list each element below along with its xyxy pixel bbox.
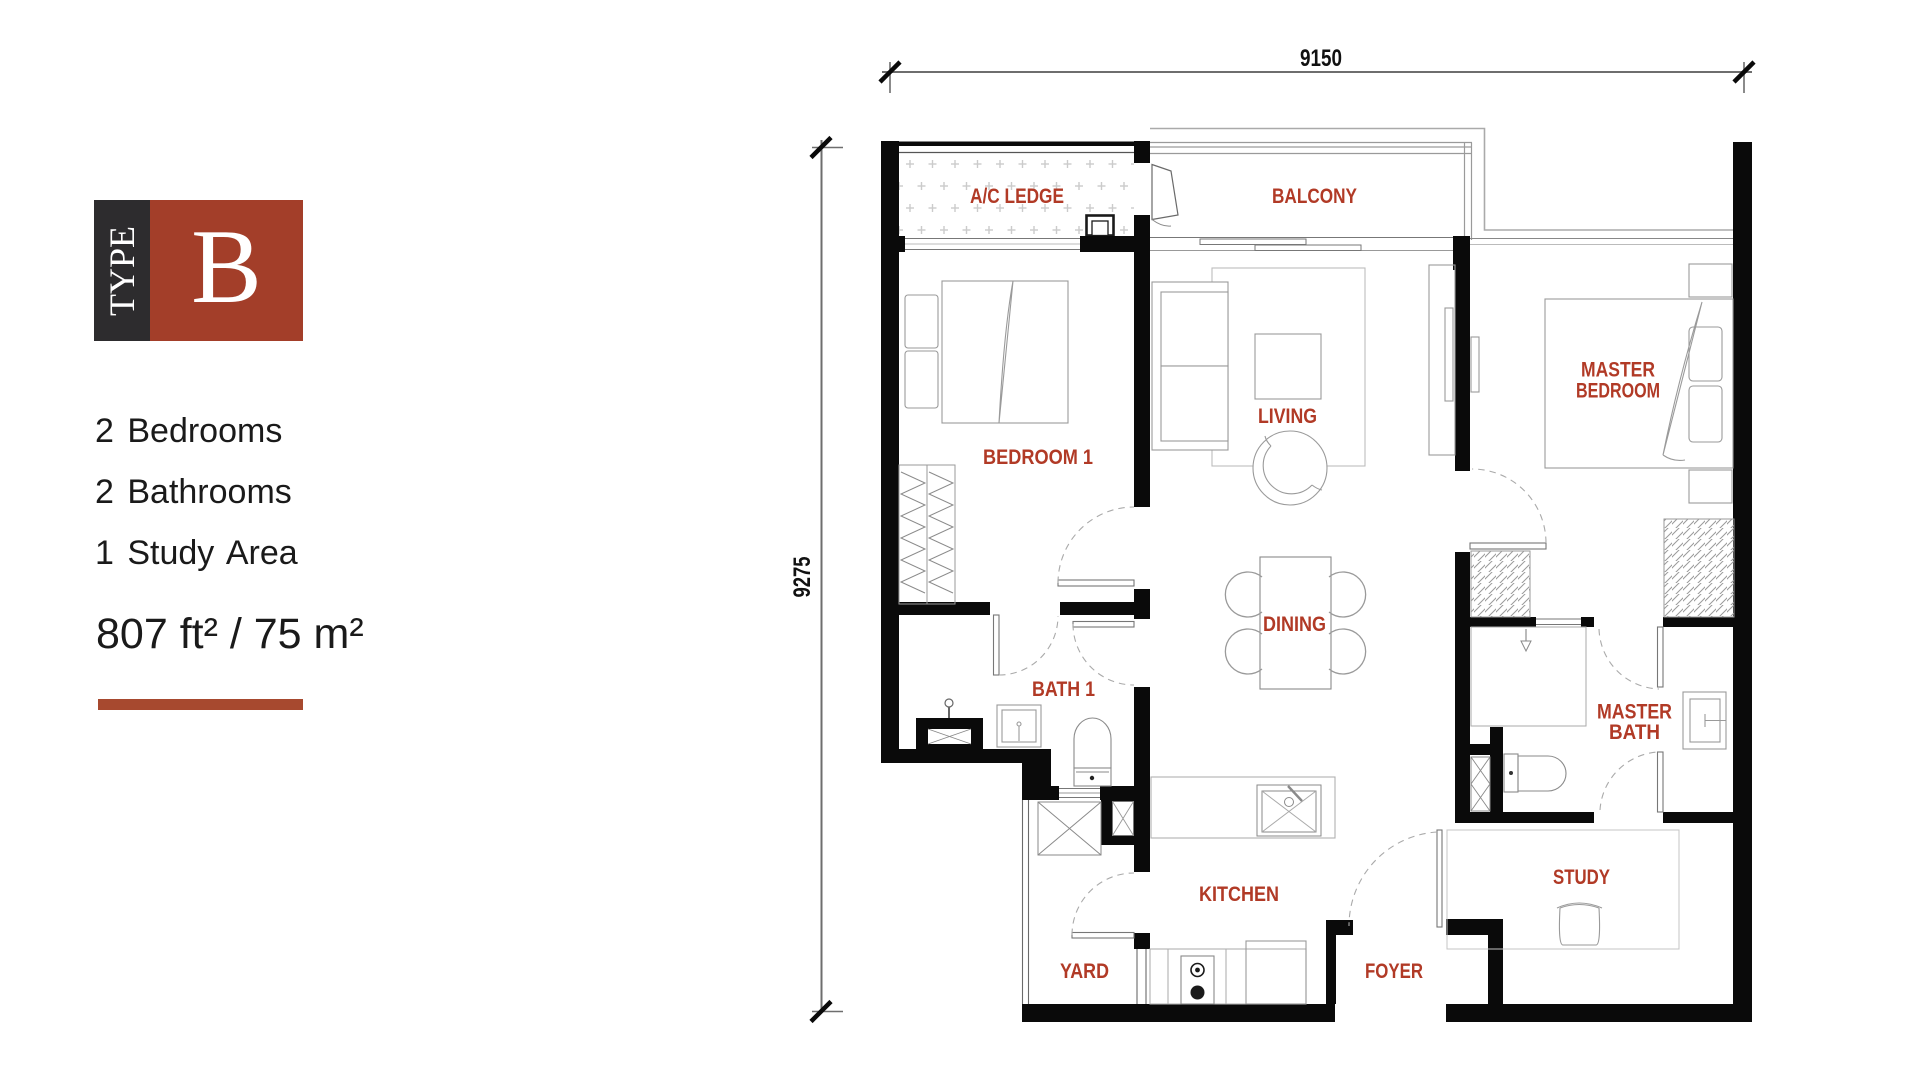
svg-text:BEDROOM: BEDROOM xyxy=(1576,379,1660,403)
svg-text:BATH: BATH xyxy=(1609,720,1660,744)
svg-text:BATH 1: BATH 1 xyxy=(1032,677,1095,701)
svg-text:DINING: DINING xyxy=(1263,612,1326,636)
svg-text:9275: 9275 xyxy=(789,557,816,598)
svg-text:BALCONY: BALCONY xyxy=(1272,184,1357,208)
svg-text:STUDY: STUDY xyxy=(1553,865,1610,889)
svg-text:A/C LEDGE: A/C LEDGE xyxy=(970,184,1064,208)
svg-text:KITCHEN: KITCHEN xyxy=(1199,882,1279,906)
svg-text:BEDROOM 1: BEDROOM 1 xyxy=(983,445,1093,469)
svg-text:YARD: YARD xyxy=(1060,959,1109,983)
svg-text:LIVING: LIVING xyxy=(1258,404,1317,428)
svg-text:9150: 9150 xyxy=(1300,45,1342,72)
svg-text:FOYER: FOYER xyxy=(1365,959,1423,983)
